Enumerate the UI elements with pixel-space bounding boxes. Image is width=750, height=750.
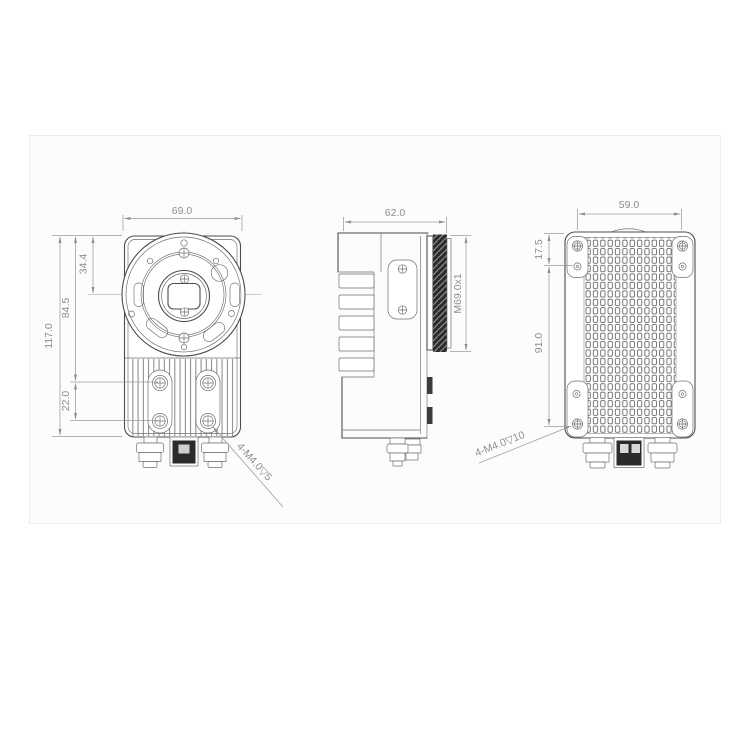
connector-neck <box>144 437 157 443</box>
dim-label: 117.0 <box>43 323 55 349</box>
dim-label: 91.0 <box>533 333 545 354</box>
rj45-port <box>179 445 190 454</box>
dim-label: 84.5 <box>60 298 72 319</box>
screw-icon <box>200 413 215 428</box>
connector-body <box>204 453 226 462</box>
side-button <box>427 407 433 424</box>
screw-icon <box>677 241 687 251</box>
connector-neck <box>209 437 222 443</box>
vent-grid <box>584 238 676 434</box>
connector-cap <box>590 462 605 468</box>
dim-label: 62.0 <box>385 207 406 219</box>
lens-ring-side <box>427 235 451 353</box>
connector-m8-left <box>583 443 612 453</box>
connector-body <box>651 453 674 462</box>
screw-icon <box>572 419 582 429</box>
screw-icon <box>152 375 167 390</box>
screw-icon <box>200 375 215 390</box>
screw-icon <box>398 306 406 314</box>
thread-hatch <box>433 235 447 353</box>
side-button <box>427 377 433 394</box>
heatsink-front <box>125 358 240 436</box>
connector-cap <box>655 462 670 468</box>
connector-m8-left <box>137 443 164 453</box>
rj45-port <box>632 444 641 453</box>
mount-hole <box>574 263 581 270</box>
side-io-plate <box>388 260 417 319</box>
connector-body <box>139 453 161 462</box>
dim-label: 59.0 <box>619 199 640 211</box>
back-view <box>565 229 695 468</box>
dim-label: 34.4 <box>78 254 90 275</box>
screw-icon <box>180 275 188 283</box>
dim-label: 69.0 <box>172 205 193 217</box>
drawing-canvas: 69.0 117.0 84.5 34.4 22.0 4-M4.0▽5 62.0 <box>0 0 750 750</box>
connector-body <box>586 453 609 462</box>
front-connectors <box>137 437 229 468</box>
screw-icon <box>180 308 188 316</box>
mount-hole <box>573 390 580 397</box>
connector-m8-right <box>648 443 677 453</box>
screw-icon <box>179 248 189 258</box>
connector-cap <box>208 462 222 468</box>
connector-neck <box>590 438 605 444</box>
mount-hole <box>679 263 686 270</box>
technical-drawing-page: 69.0 117.0 84.5 34.4 22.0 4-M4.0▽5 62.0 <box>0 0 750 750</box>
thread-label: M69.0x1 <box>452 273 464 313</box>
dim-label: 17.5 <box>533 239 545 260</box>
rj45-port <box>620 444 629 453</box>
dim-label: 22.0 <box>60 391 72 412</box>
screw-icon <box>398 265 406 273</box>
connector-cap <box>143 462 157 468</box>
back-connectors <box>583 438 677 469</box>
screw-icon <box>677 419 687 429</box>
mount-hole <box>679 390 686 397</box>
connector-m8-right <box>202 443 229 453</box>
screw-icon <box>152 413 167 428</box>
screw-icon <box>179 333 189 343</box>
connector-neck <box>655 438 670 444</box>
screw-icon <box>572 241 582 251</box>
